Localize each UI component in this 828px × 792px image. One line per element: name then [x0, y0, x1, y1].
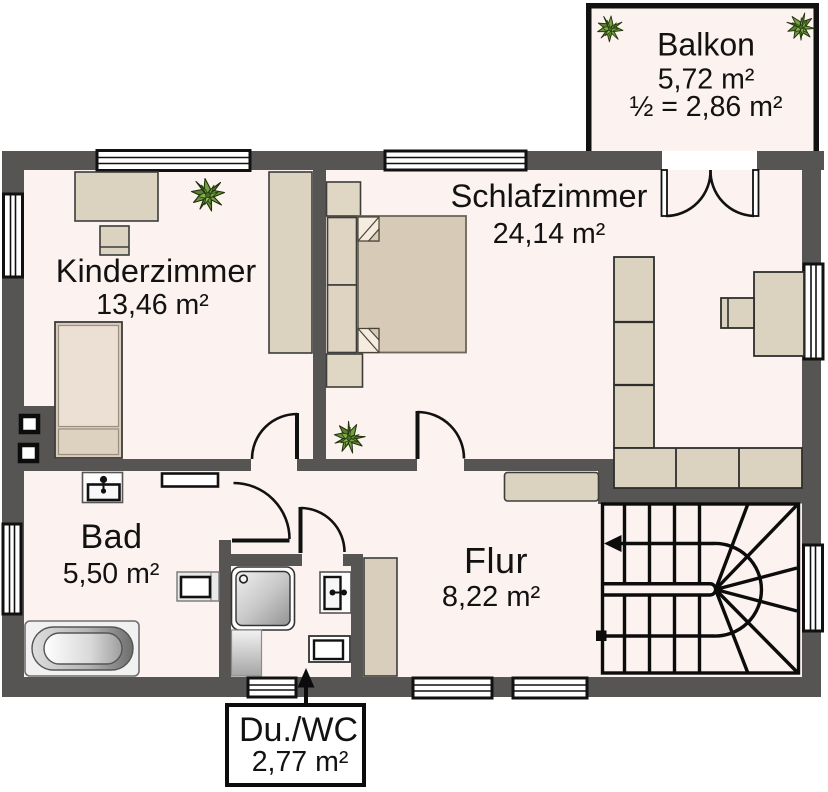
- svg-text:Schlafzimmer: Schlafzimmer: [451, 178, 648, 214]
- svg-text:Flur: Flur: [464, 540, 528, 581]
- svg-text:2,77 m²: 2,77 m²: [252, 746, 349, 778]
- svg-text:13,46 m²: 13,46 m²: [96, 289, 208, 321]
- svg-text:Balkon: Balkon: [657, 27, 755, 63]
- svg-text:Du./WC: Du./WC: [239, 711, 358, 749]
- svg-text:24,14 m²: 24,14 m²: [493, 218, 605, 250]
- svg-text:Bad: Bad: [81, 518, 143, 556]
- svg-text:½ = 2,86 m²: ½ = 2,86 m²: [630, 91, 783, 123]
- svg-text:5,50 m²: 5,50 m²: [63, 558, 160, 590]
- svg-text:Kinderzimmer: Kinderzimmer: [56, 253, 257, 289]
- svg-text:8,22 m²: 8,22 m²: [442, 581, 541, 613]
